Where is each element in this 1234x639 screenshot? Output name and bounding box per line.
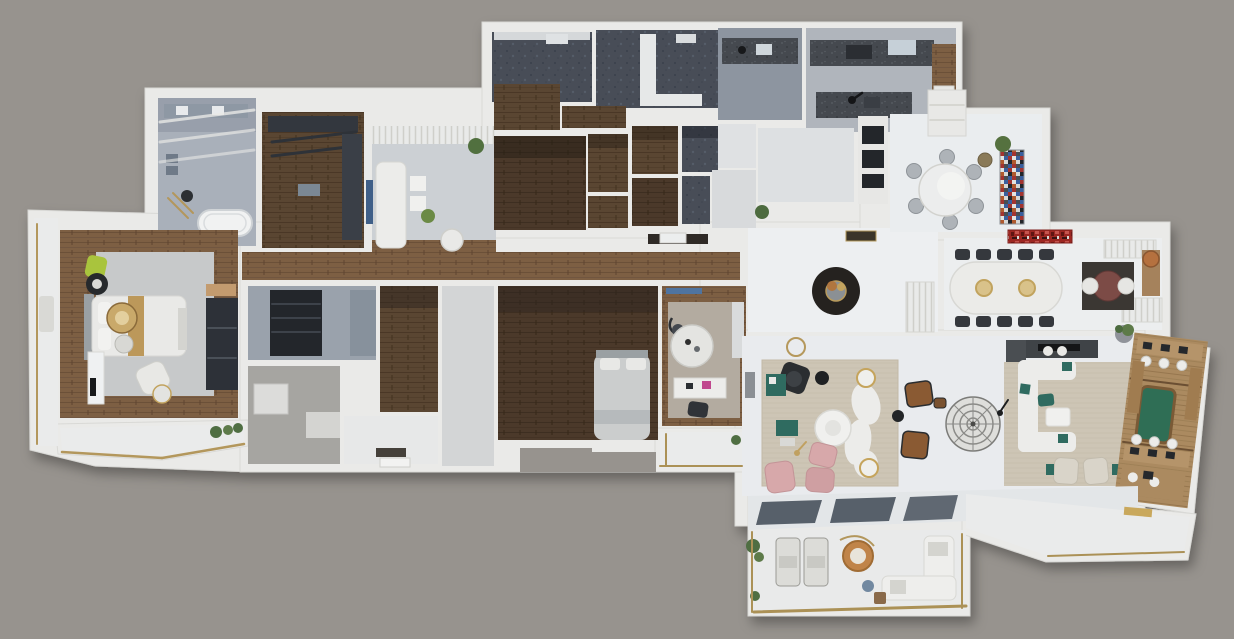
- pantry-inset-3: [862, 174, 884, 188]
- living-wall-art: [745, 372, 755, 398]
- glass-pane-3: [903, 495, 958, 521]
- room-t1-shade: [682, 126, 718, 138]
- hall-k-b-floor: [712, 170, 756, 228]
- sectional-pillow-1: [1019, 383, 1030, 394]
- entry-flowers: [827, 281, 837, 291]
- study-desk: [674, 378, 726, 398]
- laundry-a-appliance: [546, 34, 568, 44]
- closet-shelf-top: [268, 116, 358, 132]
- pink-armchair-3: [805, 467, 835, 493]
- bg-notch-1: [520, 448, 592, 472]
- wing-laptop-3: [1178, 346, 1188, 354]
- hall-k-a-floor: [718, 124, 756, 168]
- tvroom-floor-lamp-base: [997, 410, 1003, 416]
- teal-seat: [1037, 393, 1054, 407]
- balcony-lounger-2-pad: [807, 556, 825, 568]
- laundry-b-counter-h: [640, 94, 702, 106]
- lounge-plant-table: [421, 209, 435, 223]
- gold-floor-lamp-base: [794, 450, 800, 456]
- floor-mid-hall: [442, 286, 494, 466]
- bed2-headboard: [596, 350, 648, 358]
- black-side-table-living: [892, 410, 904, 422]
- sectional-pillow-3: [1058, 434, 1068, 443]
- dining-chair-b3: [997, 316, 1012, 327]
- beige-armchair-2: [1083, 457, 1110, 485]
- bed-foot-bench: [178, 308, 187, 350]
- study-desk-flowers: [702, 381, 711, 389]
- tea-chair-2: [1118, 278, 1134, 294]
- dining-red-artwork: [1008, 230, 1072, 243]
- study-chair: [687, 401, 709, 419]
- teal-cabinet-top: [769, 377, 776, 384]
- small-balcony-floor: [660, 432, 742, 468]
- entry-doormat: [846, 231, 876, 241]
- nook-bookshelf: [1000, 150, 1024, 224]
- sectional-pillow-2: [1062, 362, 1072, 371]
- bed2-blanket: [594, 410, 650, 424]
- dining-chair-b5: [1039, 316, 1054, 327]
- floorplan-viewport: [0, 0, 1234, 639]
- bedroom-ottoman: [153, 385, 171, 403]
- room-shallow-floor: [562, 106, 626, 128]
- room-m1-shade: [588, 134, 628, 148]
- pool-table: [1135, 386, 1175, 444]
- pink-armchair-1: [764, 460, 796, 494]
- dining-chair-t1: [955, 249, 970, 260]
- utility-machine-1: [254, 384, 288, 414]
- study-glass-partition: [666, 288, 702, 294]
- wing-laptop-4: [1130, 447, 1140, 455]
- wing-laptop-1: [1143, 342, 1153, 350]
- nook-chair-4: [943, 215, 958, 230]
- kitchenette-faucet: [738, 46, 746, 54]
- lounge-wall-art: [366, 180, 373, 224]
- dining-pendant-1: [976, 280, 992, 296]
- laundry-b-counter-v: [640, 34, 656, 100]
- strip-plant-3: [233, 423, 243, 433]
- study-table-item-1: [685, 339, 691, 345]
- black-planter: [815, 371, 829, 385]
- dining-pendant-2: [1019, 280, 1035, 296]
- tea-chair-1: [1082, 278, 1098, 294]
- outdoor-sofa-cushion-1: [928, 542, 948, 556]
- wardrobe-dark: [206, 298, 238, 390]
- tv-disc-1: [1043, 346, 1053, 356]
- glass-pane-2: [830, 497, 896, 523]
- bedroom-tv: [90, 378, 96, 396]
- wing-laptop-2: [1160, 344, 1170, 352]
- outdoor-side-table: [874, 592, 886, 604]
- strip-plant-1: [210, 426, 222, 438]
- bath-sink-1: [176, 106, 188, 115]
- round-coffee-inner: [825, 420, 841, 436]
- closet-side-wardrobe: [342, 134, 362, 240]
- island-sink: [864, 97, 880, 108]
- closet-bench: [298, 184, 320, 196]
- inner-hall-floor: [758, 128, 854, 202]
- dining-chair-b2: [976, 316, 991, 327]
- bed-pillow-2: [98, 328, 111, 350]
- room-t2-floor: [682, 176, 710, 224]
- bed2-pillow-2: [626, 358, 646, 370]
- strip-plant-2: [223, 425, 233, 435]
- balcony-lounger-1-pad: [779, 556, 797, 568]
- closet2-cabinet: [350, 290, 376, 356]
- kitchen-hob: [846, 45, 872, 59]
- wing-lower-laptop: [1143, 471, 1154, 480]
- nook-chair-1: [940, 150, 955, 165]
- study-round-table: [671, 325, 713, 367]
- inner-hall-plant: [755, 205, 769, 219]
- lounge-cube-table-2: [410, 196, 426, 211]
- corridor-door: [660, 233, 686, 243]
- study-desk-item: [686, 383, 693, 389]
- bed-mandala-center: [115, 311, 129, 325]
- teal-bookstack: [776, 420, 798, 436]
- nook-plant: [995, 136, 1011, 152]
- entry-gold-decor: [837, 283, 845, 291]
- entry-ribbed-cabinet: [906, 282, 934, 332]
- kitchen-appliance: [888, 40, 916, 55]
- bg-notch-2: [592, 452, 656, 472]
- utility-machine-2: [306, 412, 340, 438]
- black-chair-cushion: [786, 371, 802, 387]
- laundry-b-appliance: [676, 34, 696, 43]
- kitchenette-sink: [756, 44, 772, 55]
- lounge-cube-table-1: [410, 176, 426, 191]
- room-wd1-floor: [494, 84, 560, 130]
- bath-wall-panel-2: [166, 166, 178, 175]
- floorplan-render: [0, 0, 1234, 639]
- tvroom-plant-2: [1115, 325, 1123, 333]
- balcony-left-lounger: [39, 296, 54, 332]
- dining-chair-t3: [997, 249, 1012, 260]
- floor-corridor: [242, 252, 740, 280]
- lounge-sofa: [376, 162, 406, 248]
- bed-round-pillow-2: [115, 335, 133, 353]
- console-mirror: [1143, 251, 1159, 267]
- glass-pane-1: [756, 500, 822, 525]
- outdoor-sofa-cushion-2: [890, 580, 906, 594]
- dining-chair-t4: [1018, 249, 1033, 260]
- room-wd2-shade: [494, 136, 586, 158]
- leather-chair-2: [901, 431, 930, 460]
- nook-chair-3: [969, 199, 984, 214]
- leather-chair-1: [904, 380, 933, 407]
- outdoor-blue-pouf: [862, 580, 874, 592]
- leather-ottoman: [934, 398, 946, 408]
- teal-side-pouf-1: [1046, 464, 1054, 475]
- wing-laptop-6: [1165, 451, 1175, 459]
- balcony-plant-2: [754, 552, 764, 562]
- black-side-table-tray: [92, 279, 102, 289]
- gold-side-table-2: [860, 459, 878, 477]
- lounge-corner-plant: [468, 138, 484, 154]
- room-r2-floor: [632, 178, 678, 226]
- room-r1-shade: [632, 126, 678, 140]
- vestibule-mat: [376, 448, 406, 457]
- nook-chair-6: [907, 164, 922, 179]
- bath-stool: [181, 190, 193, 202]
- nook-table-top: [937, 172, 965, 200]
- nook-hutch: [928, 90, 966, 136]
- dark-room-shade: [380, 286, 438, 308]
- wardrobe-shelf-tan: [206, 284, 236, 296]
- dining-chair-b1: [955, 316, 970, 327]
- bed2-pillow-1: [600, 358, 620, 370]
- laundry-a-skylight: [494, 32, 590, 40]
- lounge-pouf: [441, 229, 463, 251]
- spiral-center-pole: [971, 422, 976, 427]
- vestibule-door: [380, 458, 410, 467]
- bedroom2-wall-shade: [498, 286, 658, 312]
- hanging-chair-cushion: [850, 548, 866, 564]
- tv-disc-2: [1057, 346, 1067, 356]
- closet2-dresser: [270, 290, 322, 356]
- tvroom-plant-1: [1122, 324, 1134, 336]
- rooms-and-furniture: [34, 28, 1208, 612]
- dining-chair-b4: [1018, 316, 1033, 327]
- gold-side-table-1: [857, 369, 875, 387]
- study-table-item-2: [694, 346, 700, 352]
- dining-chair-t5: [1039, 249, 1054, 260]
- teal-bookstack-top: [780, 438, 795, 446]
- beige-armchair-1: [1053, 457, 1079, 485]
- nook-basket: [978, 153, 992, 167]
- room-m2-floor: [588, 196, 628, 228]
- pantry-inset-2: [862, 150, 884, 168]
- nook-chair-2: [967, 165, 982, 180]
- dining-chair-t2: [976, 249, 991, 260]
- tv-coffee-table: [1046, 408, 1070, 426]
- small-balcony-plant: [731, 435, 741, 445]
- dining-oval-table: [950, 262, 1062, 314]
- wing-laptop-5: [1148, 449, 1158, 457]
- pantry-inset-1: [862, 126, 884, 144]
